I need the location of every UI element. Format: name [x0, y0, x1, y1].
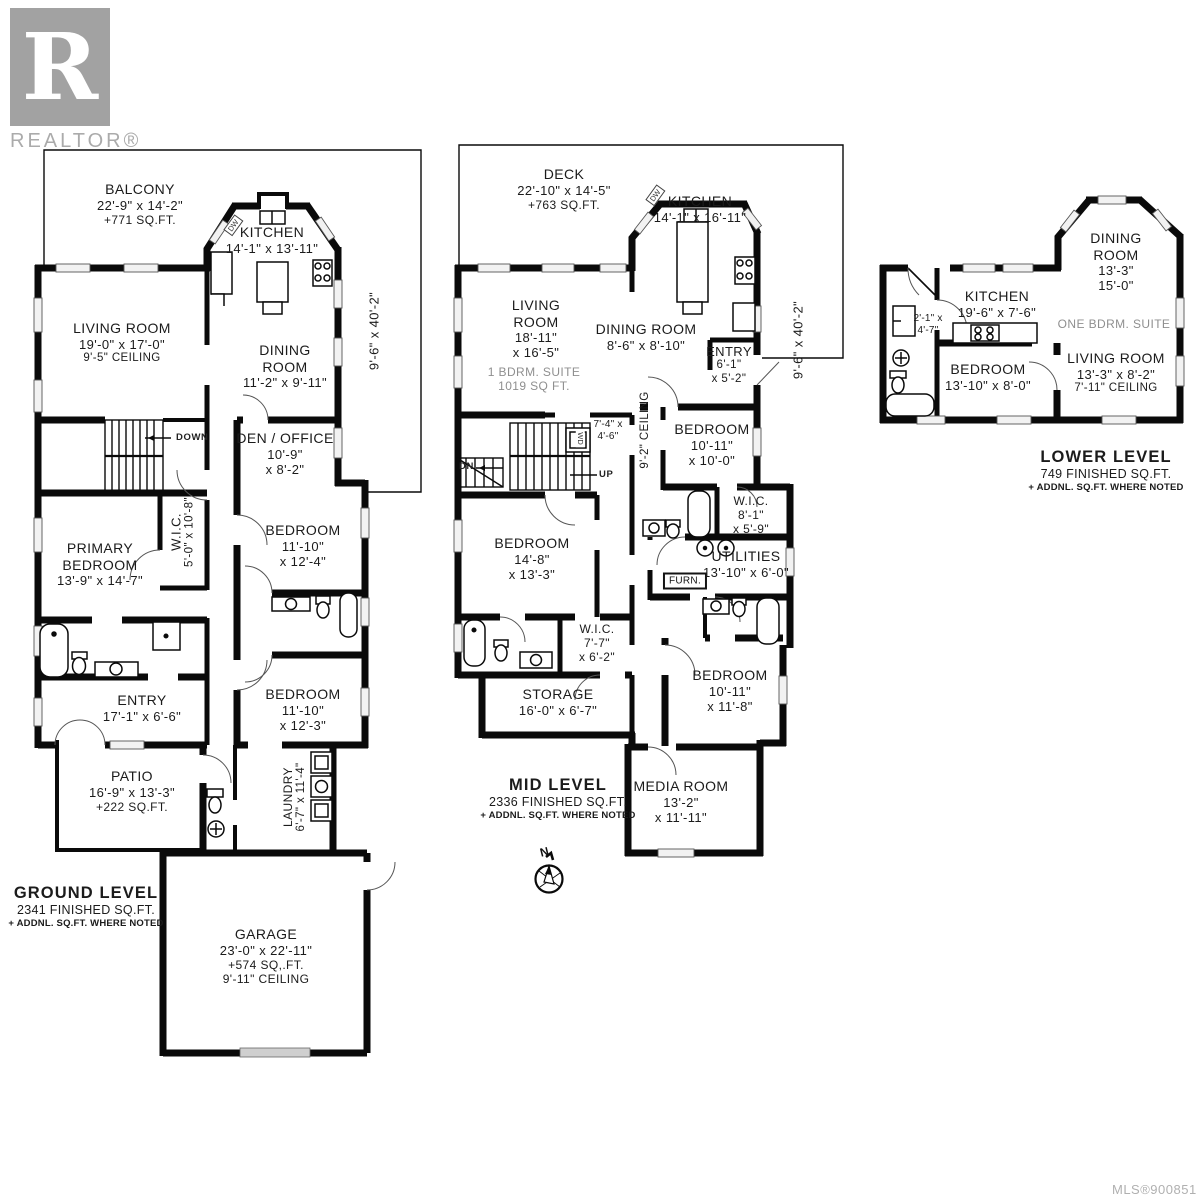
ground-stairs-down-label: DOWN: [176, 432, 208, 443]
ground-bedroom2-label: BEDROOM11'-10"x 12'-3": [265, 686, 340, 733]
mid-deck-label: DECK22'-10" x 14'-5"+763 SQ.FT.: [517, 166, 611, 212]
stove-icon: [735, 257, 755, 284]
mid-stairs-up-label: UP: [599, 469, 613, 480]
sink-icon: [208, 821, 224, 837]
ground-living-room-label: LIVING ROOM19'-0" x 17'-0"9'-5" CEILING: [73, 320, 171, 365]
realtor-logo-letter: R: [22, 21, 98, 113]
toilet-icon: [890, 371, 906, 393]
kitchen-island: [677, 222, 708, 314]
bathtub-icon: [464, 620, 485, 666]
stove-icon: [313, 260, 332, 286]
mls-number: MLS®900851: [1112, 1182, 1197, 1197]
mid-wic2-label: W.I.C.7'-7"x 6'-2": [579, 622, 615, 664]
bathtub-icon: [886, 394, 934, 416]
lower-kitchen-label: KITCHEN19'-6" x 7'-6": [958, 288, 1036, 320]
mid-living-room-label: LIVINGROOM18'-11"x 16'-5": [512, 297, 560, 361]
kitchen-sink-icon: [260, 211, 285, 224]
mid-level-title: MID LEVEL2336 FINISHED SQ.FT.+ ADDNL. SQ…: [480, 776, 635, 821]
stove-icon: [971, 325, 999, 341]
mid-wic1-label: W.I.C.8'-1"x 5'-9": [733, 494, 769, 536]
ground-den-office-label: DEN / OFFICE10'-9"x 8'-2": [236, 430, 333, 477]
ground-garage-label: GARAGE23'-0" x 22'-11"+574 SQ,.FT.9'-11"…: [220, 926, 313, 986]
toilet-icon: [316, 596, 330, 618]
toilet-icon: [207, 789, 223, 813]
mid-washer-dryer-label: WD: [576, 430, 585, 447]
ground-dining-room-label: DININGROOM11'-2" x 9'-11": [243, 342, 327, 390]
vanity-sink-icon: [95, 662, 138, 677]
bathtub-icon: [688, 491, 710, 537]
mid-utilities-label: UTILITIES13'-10" x 6'-0": [703, 548, 789, 580]
mid-landing-dimension: 7'-4" x4'-6": [593, 419, 622, 443]
ground-balcony-label: BALCONY22'-9" x 14'-2"+771 SQ.FT.: [97, 181, 183, 227]
mid-bedroom1-label: BEDROOM10'-11"x 10'-0": [674, 421, 749, 468]
bathtub-icon: [40, 624, 68, 677]
mid-suite-note: 1 BDRM. SUITE1019 SQ FT.: [488, 365, 581, 393]
ground-primary-bedroom-label: PRIMARYBEDROOM13'-9" x 14'-7": [57, 540, 143, 588]
mid-furnace-label: FURN.: [663, 573, 707, 590]
ground-kitchen-label: KITCHEN14'-1" x 13'-11": [226, 224, 319, 256]
lower-bedroom-label: BEDROOM13'-10" x 8'-0": [945, 361, 1031, 393]
toilet-icon: [666, 520, 680, 538]
mid-ceiling-note: 9'-2" CEILING: [639, 391, 653, 468]
mid-dining-room-label: DINING ROOM8'-6" x 8'-10": [596, 321, 697, 353]
shower-icon: [153, 622, 180, 650]
closet-icon: [893, 306, 915, 336]
realtor-logo: R REALTOR®: [10, 8, 141, 153]
mid-bedroom3-label: BEDROOM10'-11"x 11'-8": [692, 667, 767, 714]
ground-side-dimension: 9'-6" x 40'-2": [366, 292, 381, 370]
lower-level-title: LOWER LEVEL749 FINISHED SQ.FT.+ ADDNL. S…: [1028, 448, 1183, 493]
mid-entry-label: ENTRY6'-1"x 5'-2": [706, 344, 752, 386]
mid-side-dimension: 9'-6" x 40'-2": [790, 301, 805, 379]
floor-plan-page: { "branding": { "logo_letter": "R", "log…: [0, 0, 1200, 1200]
ground-wic-label: W.I.C.5'-0" x 10'-8": [169, 497, 198, 567]
kitchen-counter: [733, 303, 755, 331]
ground-level-title: GROUND LEVEL2341 FINISHED SQ.FT.+ ADDNL.…: [8, 884, 163, 929]
lower-suite-note: ONE BDRM. SUITE: [1058, 317, 1171, 331]
toilet-icon: [494, 640, 508, 661]
mid-stairs-dn-label: DN: [459, 461, 474, 472]
ground-patio-label: PATIO16'-9" x 13'-3"+222 SQ.FT.: [89, 768, 175, 814]
mid-media-room-label: MEDIA ROOM13'-2"x 11'-11": [633, 778, 728, 825]
lower-dining-room-label: DININGROOM13'-3"15'-0": [1090, 230, 1141, 294]
sink-icon: [643, 520, 665, 536]
vanity-sink-icon: [520, 652, 552, 668]
bathtub-icon: [340, 593, 357, 637]
realtor-logo-text: REALTOR®: [10, 130, 141, 153]
bathtub-icon: [757, 598, 779, 644]
ground-entry-label: ENTRY17'-1" x 6'-6": [103, 692, 181, 724]
realtor-logo-block: R: [10, 8, 110, 126]
lower-living-room-label: LIVING ROOM13'-3" x 8'-2"7'-11" CEILING: [1067, 350, 1165, 395]
mid-bedroom2-label: BEDROOM14'-8"x 13'-3": [494, 535, 569, 582]
toilet-icon: [732, 598, 746, 617]
lower-closet-dimension: 2'-1" x4'-7": [913, 313, 942, 337]
washer-dryer-icon: [311, 752, 332, 821]
sink-icon: [893, 350, 909, 366]
toilet-icon: [72, 652, 87, 675]
sink-icon: [703, 599, 729, 614]
mid-kitchen-label: KITCHEN14'-1" x 16'-11": [654, 193, 747, 225]
mid-storage-label: STORAGE16'-0" x 6'-7": [519, 686, 597, 718]
vanity-sink-icon: [272, 597, 310, 611]
north-compass-icon: [536, 853, 563, 893]
ground-laundry-label: LAUNDRY6'-7" x 11'-4": [281, 762, 309, 831]
ground-bedroom1-label: BEDROOM11'-10"x 12'-4": [265, 522, 340, 569]
